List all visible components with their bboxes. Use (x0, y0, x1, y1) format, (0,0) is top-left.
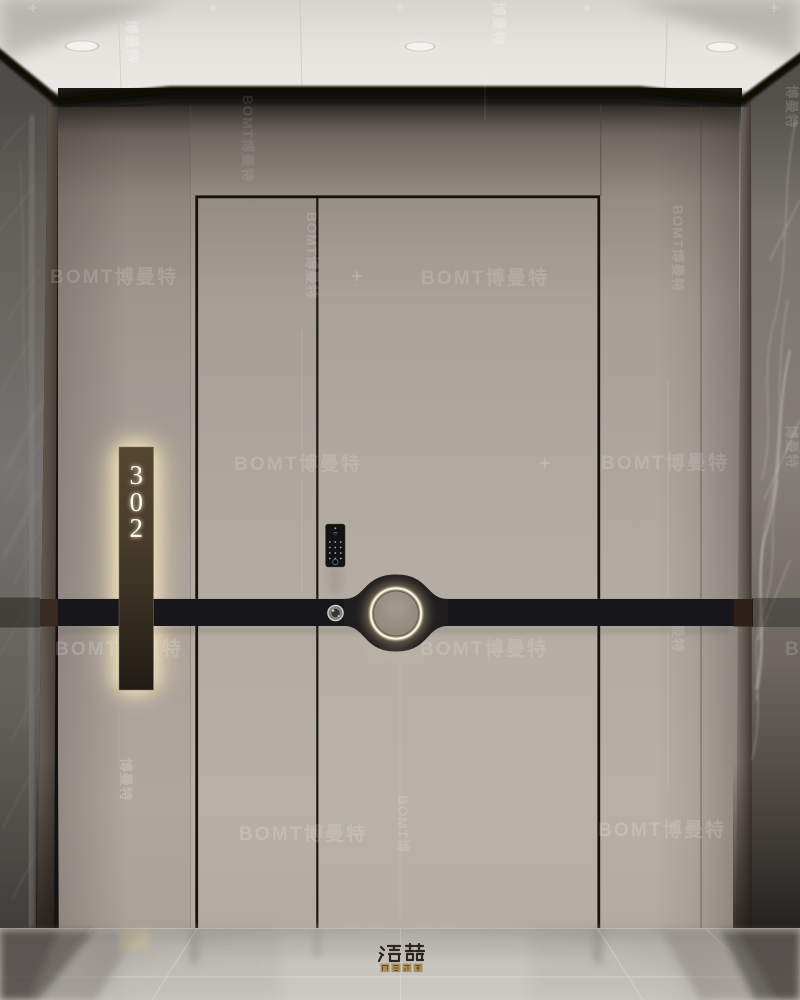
svg-text:博曼特: 博曼特 (784, 85, 800, 129)
svg-text:BOMT博曼特: BOMT博曼特 (601, 451, 729, 474)
svg-text:BOMT博曼特: BOMT博曼特 (670, 205, 686, 292)
svg-text:BOMT博曼特: BOMT博曼特 (304, 212, 320, 299)
svg-text:BOMT博曼特: BOMT博曼特 (50, 265, 178, 288)
svg-text:BOMT博曼特: BOMT博曼特 (240, 95, 256, 182)
svg-text:BOMT博曼特: BOMT博曼特 (785, 637, 800, 660)
svg-text:博曼特: 博曼特 (124, 20, 140, 64)
svg-text:博曼特: 博曼特 (491, 2, 507, 46)
svg-text:BOMT博曼特: BOMT博曼特 (598, 818, 726, 841)
svg-text:3: 3 (130, 460, 144, 490)
svg-text:博曼特: 博曼特 (118, 758, 134, 802)
svg-text:博曼特: 博曼特 (784, 425, 800, 469)
svg-text:2: 2 (130, 513, 144, 543)
